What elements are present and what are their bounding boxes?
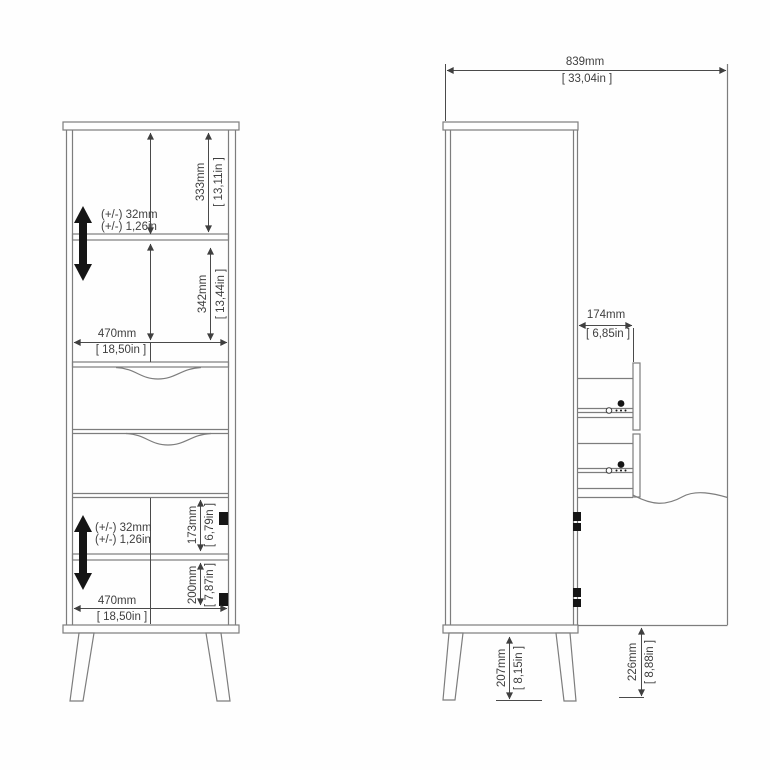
side-bottom-panel [443, 625, 578, 633]
front-door-hinge-top [219, 512, 228, 525]
dim-207mm-inch-label: [ 8,15in ] [513, 646, 525, 690]
dim-470mm-top-inch-label: [ 18,50in ] [96, 344, 147, 356]
front-adjustable-shelf-top [73, 234, 229, 240]
shelf-tolerance-top-in: (+/-) 1,26in [101, 221, 157, 233]
dim-173mm-label: 173mm [187, 506, 199, 544]
dim-839mm-label: 839mm [566, 56, 604, 68]
front-top-panel [63, 122, 239, 130]
side-drawer2-extended [578, 434, 641, 497]
front-leg-right [206, 633, 230, 701]
furniture-dimension-drawing: 333mm [ 13,11in ] 342mm [ 13,44in ] 173m… [0, 0, 770, 770]
dim-470mm-bottom-inch-label: [ 18,50in ] [97, 611, 148, 623]
dim-174mm-label: 174mm [587, 309, 625, 321]
drawer2-handle-cutout [126, 434, 211, 446]
front-bottom-panel [63, 625, 239, 633]
front-leg-left [70, 633, 94, 701]
shelf-adjust-arrow-icon-top [74, 206, 92, 281]
drawer1-handle-cutout [116, 368, 201, 380]
shelf-tolerance-top-mm: (+/-) 32mm [101, 209, 158, 221]
dim-207mm-label: 207mm [496, 649, 508, 687]
dim-333mm-inch-label: [ 13,11in ] [213, 157, 225, 207]
dim-342mm-label: 342mm [197, 275, 209, 313]
front-door-hinge-bottom [219, 593, 228, 606]
dim-470mm-bottom-label: 470mm [98, 595, 136, 607]
shelf-adjust-arrow-icon-bottom [74, 515, 92, 590]
dimension-lines [74, 64, 726, 701]
side-leg-back [443, 633, 463, 700]
side-drawer2-front-panel [633, 434, 640, 497]
open-door-projection [578, 64, 728, 626]
dim-839mm-inch-label: [ 33,04in ] [562, 73, 613, 85]
dim-174mm-inch-label: [ 6,85in ] [586, 328, 630, 340]
dim-200mm-label: 200mm [187, 566, 199, 604]
shelf-tolerance-bottom-mm: (+/-) 32mm [95, 522, 152, 534]
shelf-tolerance-bottom-in: (+/-) 1,26in [95, 534, 151, 546]
dim-470mm-top-label: 470mm [98, 328, 136, 340]
dim-173mm-inch-label: [ 6,79in ] [204, 503, 216, 547]
side-leg-front [556, 633, 576, 701]
side-view [443, 64, 728, 701]
drawer-slide-rollers [606, 400, 626, 473]
front-divider-above-drawers [73, 362, 229, 367]
dim-226mm-label: 226mm [627, 643, 639, 681]
side-drawer1-front-panel [633, 363, 640, 430]
dim-200mm-inch-label: [ 7,87in ] [204, 563, 216, 607]
break-wavy-line [633, 493, 728, 504]
dim-333mm-label: 333mm [195, 163, 207, 201]
dim-226mm-inch-label: [ 8,88in ] [644, 640, 656, 684]
side-top-panel [443, 122, 578, 130]
side-drawer1-extended [578, 363, 641, 430]
dim-342mm-inch-label: [ 13,44in ] [215, 269, 227, 320]
